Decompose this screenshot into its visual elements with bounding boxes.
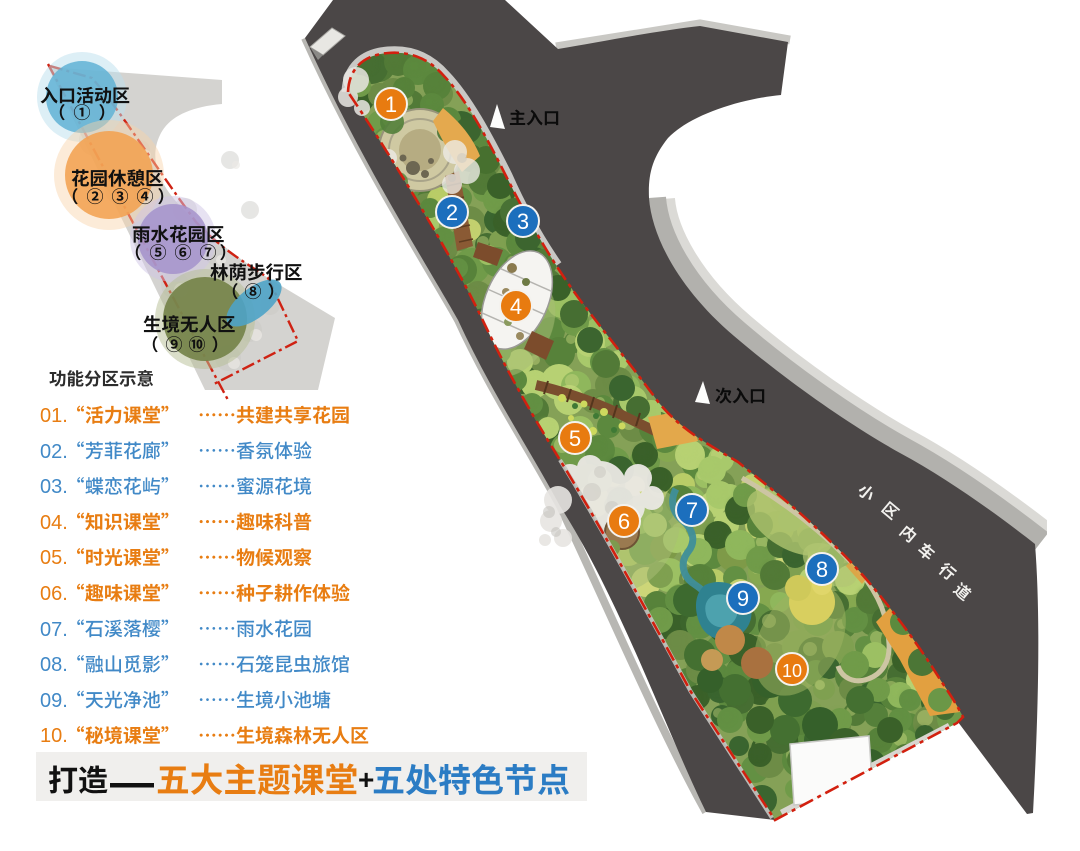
svg-text:03.: 03. bbox=[40, 476, 68, 498]
svg-text:5: 5 bbox=[569, 426, 581, 451]
svg-text:04.: 04. bbox=[40, 512, 68, 534]
svg-text:05.: 05. bbox=[40, 547, 68, 569]
svg-text:10.: 10. bbox=[40, 725, 68, 747]
svg-text:9: 9 bbox=[737, 586, 749, 611]
svg-text:08.: 08. bbox=[40, 654, 68, 676]
svg-text:7: 7 bbox=[686, 498, 698, 523]
svg-text:01.: 01. bbox=[40, 405, 68, 427]
svg-text:1: 1 bbox=[385, 92, 397, 117]
svg-text:06.: 06. bbox=[40, 583, 68, 605]
svg-text:10: 10 bbox=[782, 661, 802, 681]
svg-text:4: 4 bbox=[510, 294, 522, 319]
svg-text:2: 2 bbox=[446, 200, 458, 225]
svg-text:07.: 07. bbox=[40, 619, 68, 641]
svg-text:3: 3 bbox=[517, 209, 529, 234]
svg-text:6: 6 bbox=[618, 509, 630, 534]
svg-text:02.: 02. bbox=[40, 441, 68, 463]
svg-text:8: 8 bbox=[816, 557, 828, 582]
svg-text:09.: 09. bbox=[40, 690, 68, 712]
svg-text:+: + bbox=[358, 764, 374, 795]
